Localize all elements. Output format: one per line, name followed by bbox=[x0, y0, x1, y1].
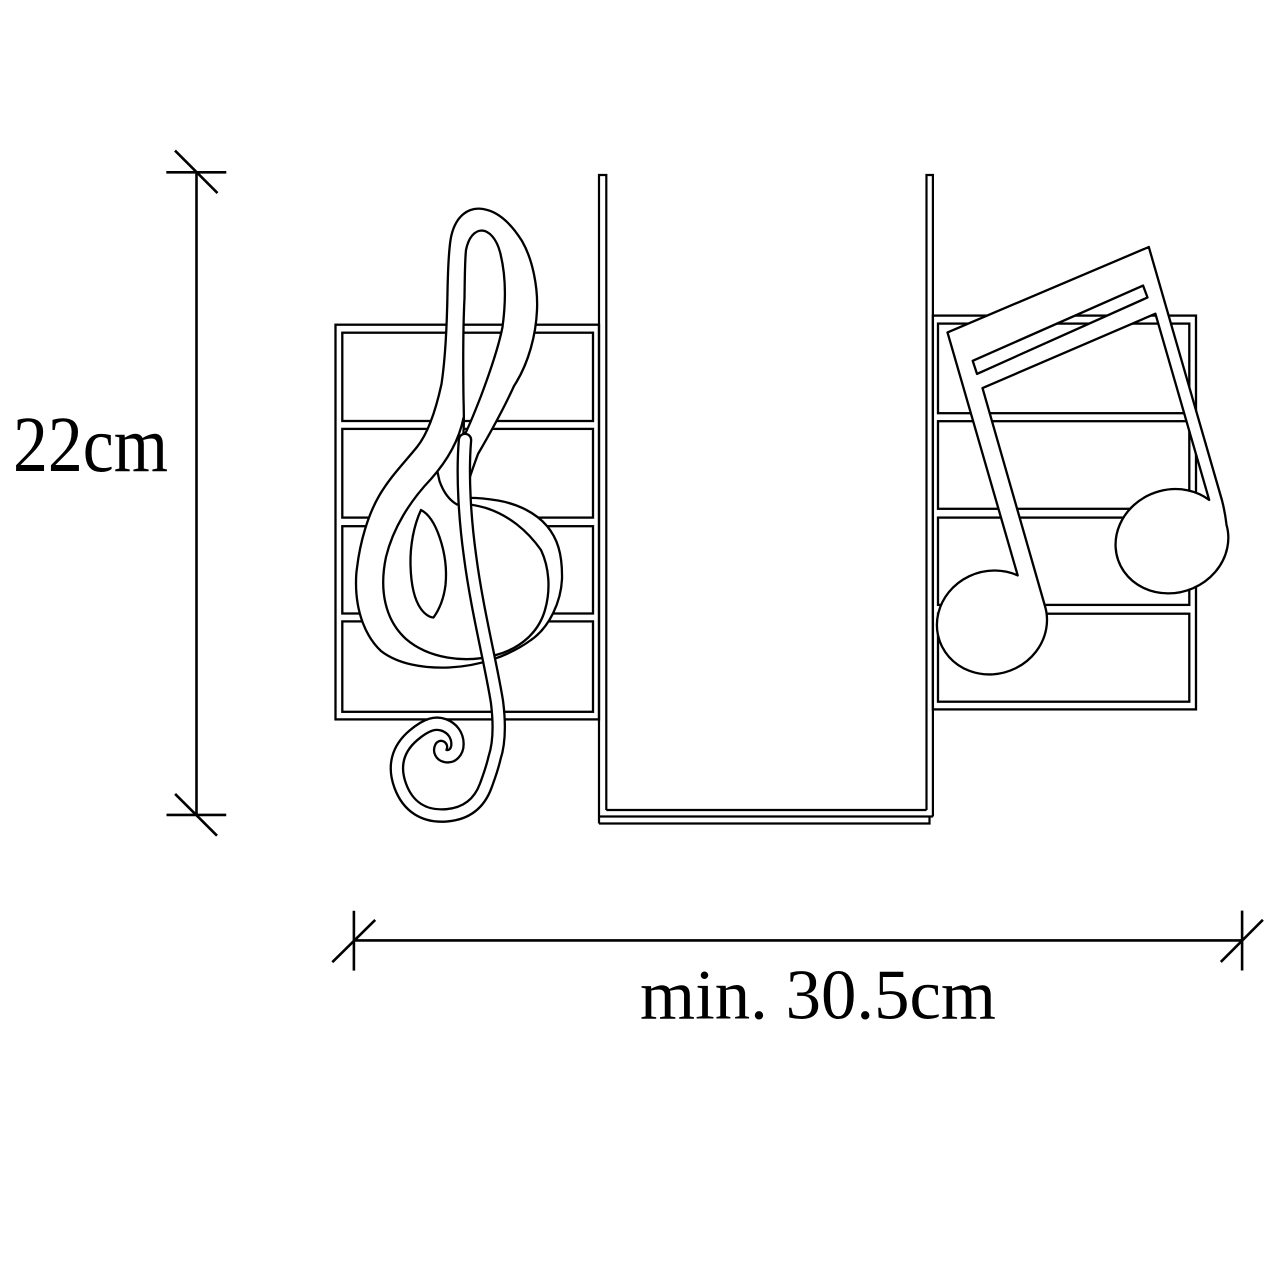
svg-text:22cm: 22cm bbox=[13, 402, 168, 489]
svg-text:min. 30.5cm: min. 30.5cm bbox=[640, 957, 996, 1035]
